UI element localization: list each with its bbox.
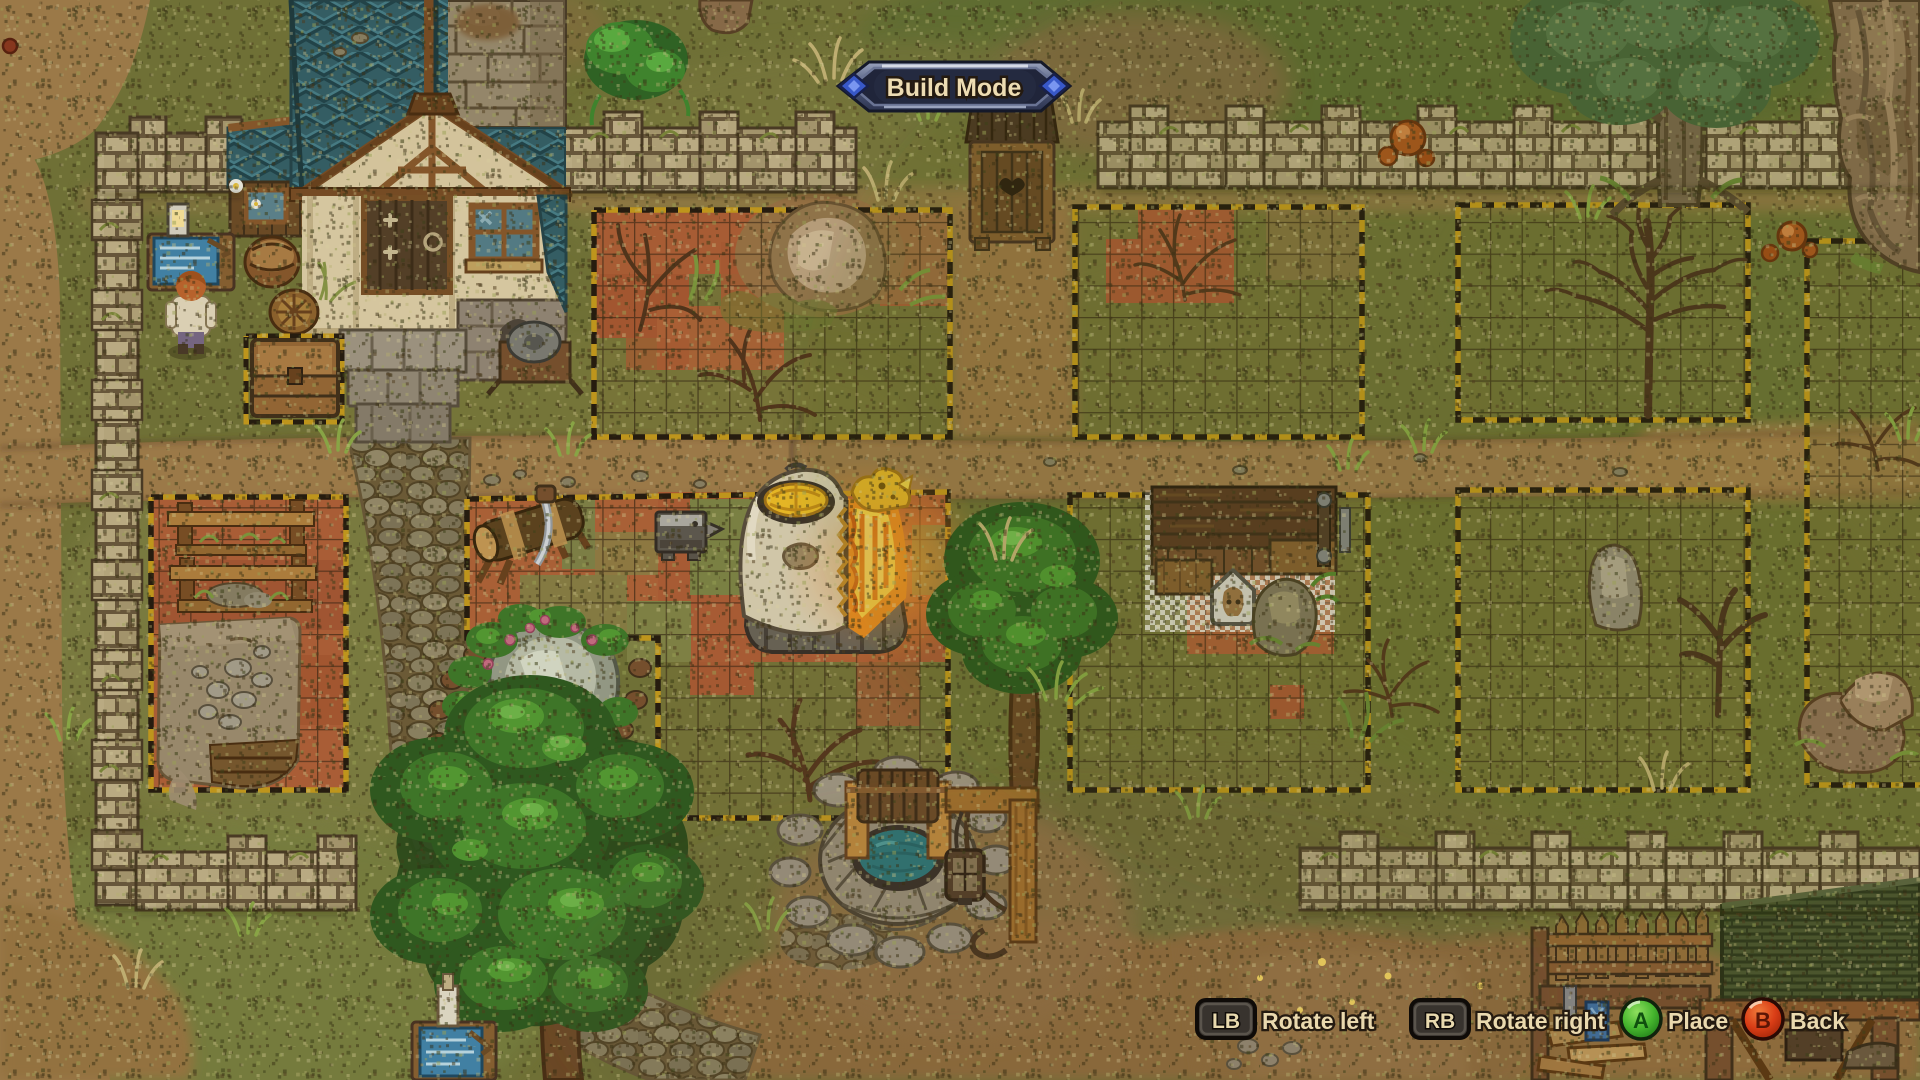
svg-text:Build Mode: Build Mode xyxy=(887,74,1022,102)
svg-text:B: B xyxy=(1755,1008,1771,1033)
svg-text:LB: LB xyxy=(1212,1010,1240,1033)
svg-text:Place: Place xyxy=(1668,1008,1728,1034)
svg-text:Rotate left: Rotate left xyxy=(1262,1008,1375,1034)
svg-text:RB: RB xyxy=(1425,1010,1455,1033)
svg-text:A: A xyxy=(1633,1008,1649,1033)
svg-text:Rotate right: Rotate right xyxy=(1476,1008,1605,1034)
svg-text:Back: Back xyxy=(1790,1008,1845,1034)
